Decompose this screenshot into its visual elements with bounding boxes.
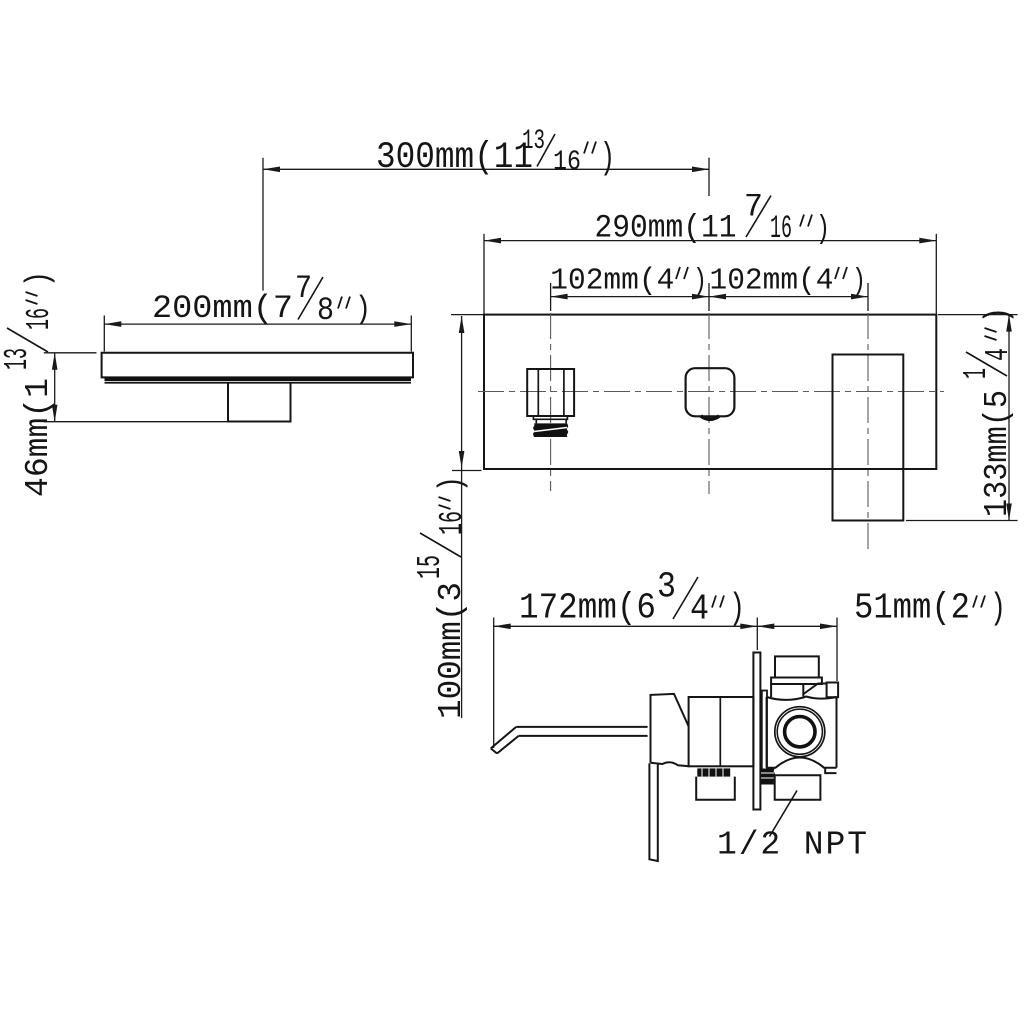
svg-text:102mm(4: 102mm(4 bbox=[710, 264, 834, 299]
svg-text:16: 16 bbox=[434, 511, 471, 535]
svg-text:100mm(3: 100mm(3 bbox=[433, 582, 470, 719]
svg-text:): ) bbox=[600, 138, 615, 180]
svg-text:13: 13 bbox=[522, 126, 545, 157]
svg-text:15: 15 bbox=[412, 555, 449, 579]
svg-text:): ) bbox=[729, 588, 745, 629]
svg-text:16: 16 bbox=[553, 147, 581, 178]
svg-text:): ) bbox=[990, 588, 1006, 629]
svg-text:133mm(5: 133mm(5 bbox=[979, 390, 1016, 517]
svg-text:290mm(11: 290mm(11 bbox=[595, 209, 737, 246]
svg-text:300mm(11: 300mm(11 bbox=[376, 137, 533, 179]
svg-text:1: 1 bbox=[958, 368, 995, 379]
svg-text:13: 13 bbox=[0, 348, 36, 370]
svg-text:3: 3 bbox=[657, 567, 676, 608]
svg-text:): ) bbox=[21, 271, 58, 287]
svg-text:): ) bbox=[816, 211, 830, 248]
svg-text:46mm(1: 46mm(1 bbox=[20, 378, 57, 497]
svg-text:7: 7 bbox=[744, 188, 763, 225]
svg-text:1/2 NPT: 1/2 NPT bbox=[717, 827, 867, 864]
svg-text:4: 4 bbox=[690, 589, 709, 630]
svg-text:200mm(7: 200mm(7 bbox=[152, 290, 293, 327]
svg-text:): ) bbox=[980, 307, 1017, 323]
svg-text:): ) bbox=[355, 291, 371, 328]
svg-text:): ) bbox=[852, 264, 866, 299]
svg-text:8: 8 bbox=[317, 292, 334, 329]
svg-text:): ) bbox=[434, 476, 471, 492]
svg-text:4: 4 bbox=[980, 348, 1017, 361]
svg-text:16: 16 bbox=[770, 210, 792, 247]
svg-text:172mm(6: 172mm(6 bbox=[519, 588, 656, 629]
svg-text:): ) bbox=[693, 264, 707, 299]
svg-text:16: 16 bbox=[21, 308, 58, 330]
svg-text:102mm(4: 102mm(4 bbox=[550, 264, 674, 299]
svg-text:51mm(2: 51mm(2 bbox=[854, 588, 970, 629]
